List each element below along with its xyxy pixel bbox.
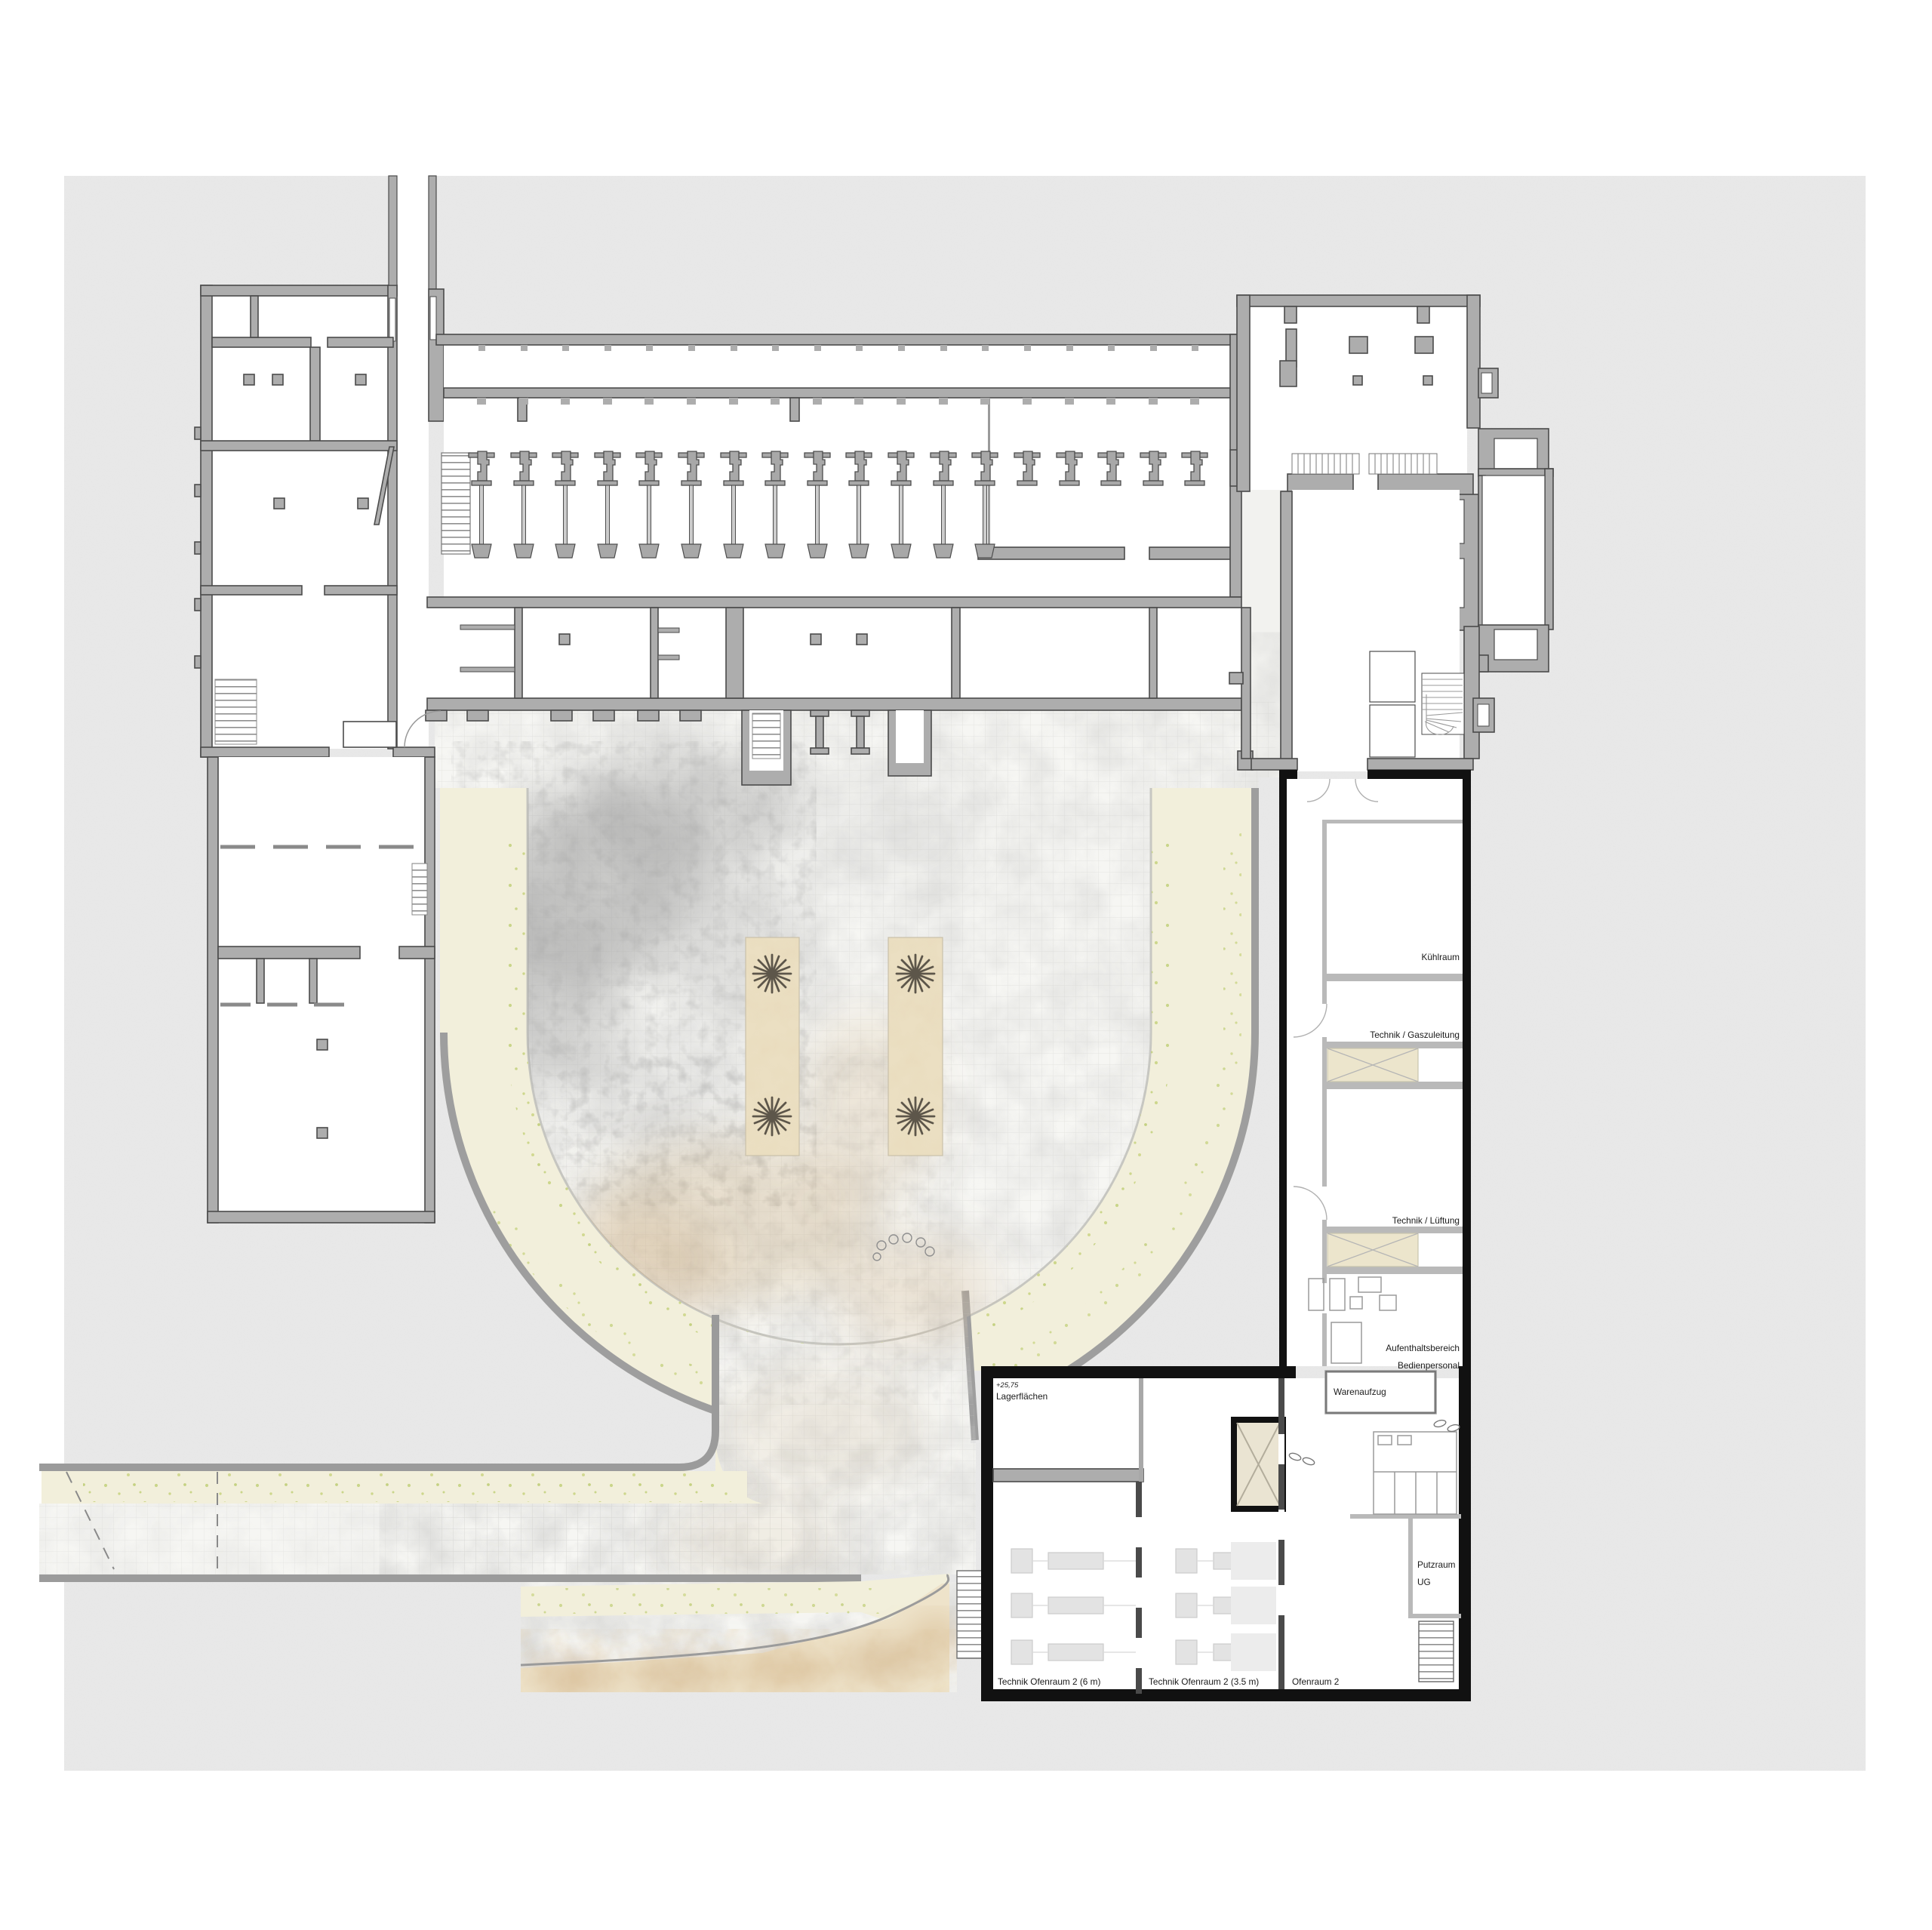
svg-text:Bedienpersonal: Bedienpersonal xyxy=(1398,1360,1460,1371)
svg-text:Putzraum: Putzraum xyxy=(1417,1559,1456,1570)
svg-text:Ofenraum 2: Ofenraum 2 xyxy=(1292,1676,1339,1687)
svg-text:Warenaufzug: Warenaufzug xyxy=(1334,1387,1386,1397)
svg-text:Technik / Gaszuleitung: Technik / Gaszuleitung xyxy=(1370,1030,1460,1040)
svg-text:Technik / Lüftung: Technik / Lüftung xyxy=(1392,1215,1460,1226)
svg-text:Technik Ofenraum 2 (6 m): Technik Ofenraum 2 (6 m) xyxy=(998,1676,1100,1687)
svg-text:Aufenthaltsbereich: Aufenthaltsbereich xyxy=(1386,1343,1460,1353)
svg-text:UG: UG xyxy=(1417,1577,1431,1587)
svg-text:+25,75: +25,75 xyxy=(996,1381,1019,1390)
svg-text:Kühlraum: Kühlraum xyxy=(1422,952,1460,962)
svg-text:Technik Ofenraum 2 (3.5 m): Technik Ofenraum 2 (3.5 m) xyxy=(1149,1676,1259,1687)
svg-text:Lagerflächen: Lagerflächen xyxy=(996,1391,1048,1402)
